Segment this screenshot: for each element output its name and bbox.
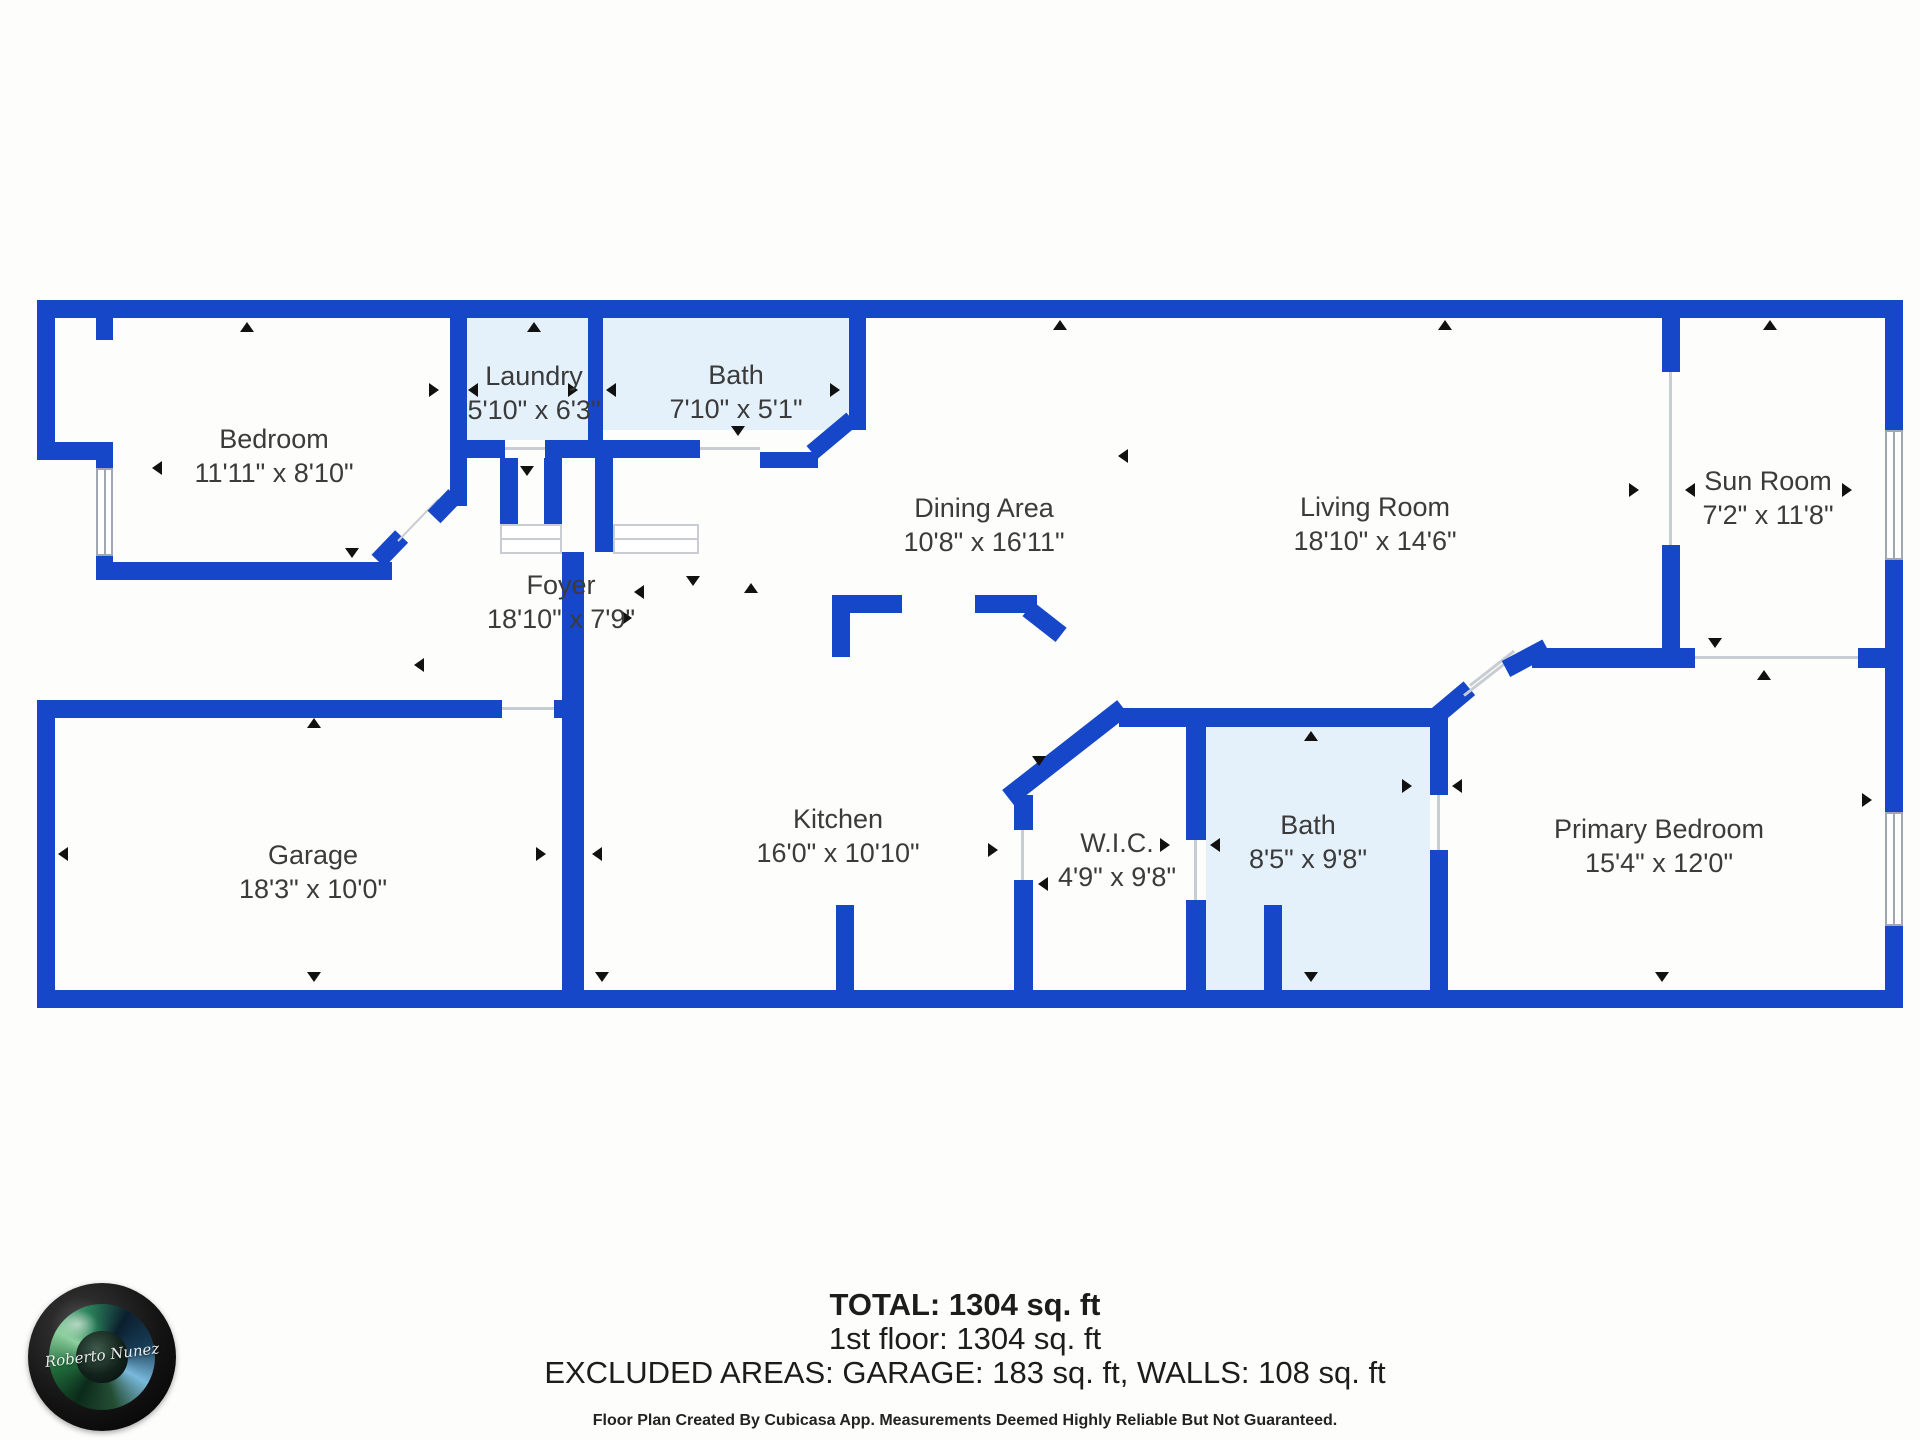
direction-arrow-icon (429, 383, 439, 397)
door-opening (1669, 372, 1672, 545)
room-name: W.I.C. (1058, 826, 1176, 860)
direction-arrow-icon (1402, 779, 1412, 793)
wall (1662, 318, 1680, 372)
direction-arrow-icon (1053, 320, 1067, 330)
room-dims: 7'2" x 11'8" (1702, 498, 1833, 532)
wall (37, 300, 1903, 318)
room-name: Garage (239, 838, 387, 872)
room-label-sun-room: Sun Room 7'2" x 11'8" (1702, 464, 1833, 532)
room-name: Bath (1249, 808, 1367, 842)
wall (96, 318, 113, 340)
room-name: Dining Area (903, 491, 1064, 525)
room-label-wic: W.I.C. 4'9" x 9'8" (1058, 826, 1176, 894)
room-label-garage: Garage 18'3" x 10'0" (239, 838, 387, 906)
room-label-foyer: Foyer 18'10" x 7'9" (487, 568, 635, 636)
room-label-primary-bedroom: Primary Bedroom 15'4" x 12'0" (1554, 812, 1764, 880)
room-dims: 5'10" x 6'3" (467, 393, 600, 427)
room-label-bath: Bath 7'10" x 5'1" (669, 358, 802, 426)
room-name: Bath (669, 358, 802, 392)
wall (832, 595, 902, 613)
direction-arrow-icon (345, 548, 359, 558)
direction-arrow-icon (731, 426, 745, 436)
wall (1014, 880, 1033, 1008)
direction-arrow-icon (592, 847, 602, 861)
room-dims: 18'10" x 7'9" (487, 602, 635, 636)
direction-arrow-icon (240, 322, 254, 332)
direction-arrow-icon (1304, 972, 1318, 982)
wall (37, 700, 55, 1008)
room-name: Sun Room (1702, 464, 1833, 498)
direction-arrow-icon (830, 383, 840, 397)
room-name: Kitchen (756, 802, 919, 836)
first-floor-area-text: 1st floor: 1304 sq. ft (360, 1322, 1570, 1356)
direction-arrow-icon (527, 322, 541, 332)
door-opening (1194, 840, 1197, 900)
direction-arrow-icon (1655, 972, 1669, 982)
room-label-laundry: Laundry 5'10" x 6'3" (467, 359, 600, 427)
direction-arrow-icon (1304, 731, 1318, 741)
direction-arrow-icon (1629, 483, 1639, 497)
direction-arrow-icon (744, 583, 758, 593)
wall (595, 458, 613, 552)
door-opening (1437, 795, 1440, 850)
room-dims: 10'8" x 16'11" (903, 525, 1064, 559)
wall (760, 452, 818, 468)
room-label-bath-2: Bath 8'5" x 9'8" (1249, 808, 1367, 876)
floor-plan: Bedroom 11'11" x 8'10" Laundry 5'10" x 6… (0, 0, 1920, 1440)
wall (37, 300, 55, 460)
room-dims: 11'11" x 8'10" (194, 456, 353, 490)
wall (1186, 900, 1206, 1008)
direction-arrow-icon (1842, 483, 1852, 497)
direction-arrow-icon (536, 847, 546, 861)
room-label-dining-area: Dining Area 10'8" x 16'11" (903, 491, 1064, 559)
direction-arrow-icon (520, 466, 534, 476)
wall (1885, 926, 1903, 1008)
wall (96, 442, 113, 468)
room-dims: 4'9" x 9'8" (1058, 860, 1176, 894)
direction-arrow-icon (1757, 670, 1771, 680)
room-name: Primary Bedroom (1554, 812, 1764, 846)
room-name: Laundry (467, 359, 600, 393)
wall (1119, 708, 1448, 727)
direction-arrow-icon (58, 847, 68, 861)
direction-arrow-icon (1438, 320, 1452, 330)
photographer-logo: Roberto Nunez (28, 1283, 176, 1431)
wall (450, 318, 467, 506)
wall (1022, 602, 1066, 642)
room-name: Living Room (1293, 490, 1456, 524)
room-dims: 16'0" x 10'10" (756, 836, 919, 870)
direction-arrow-icon (1038, 877, 1048, 891)
wall (545, 440, 700, 458)
room-label-kitchen: Kitchen 16'0" x 10'10" (756, 802, 919, 870)
direction-arrow-icon (595, 972, 609, 982)
wall (836, 905, 854, 1008)
door-opening (1463, 660, 1509, 697)
excluded-areas-text: EXCLUDED AREAS: GARAGE: 183 sq. ft, WALL… (360, 1356, 1570, 1390)
direction-arrow-icon (307, 718, 321, 728)
door-opening (505, 447, 545, 450)
door-opening (1021, 830, 1024, 880)
wall (37, 990, 1903, 1008)
closet-doors (613, 524, 699, 554)
room-dims: 18'10" x 14'6" (1293, 524, 1456, 558)
direction-arrow-icon (1708, 638, 1722, 648)
room-dims: 15'4" x 12'0" (1554, 846, 1764, 880)
direction-arrow-icon (1032, 756, 1046, 766)
direction-arrow-icon (606, 383, 616, 397)
wall (1186, 727, 1206, 840)
direction-arrow-icon (1763, 320, 1777, 330)
wall (450, 440, 505, 458)
window-symbol (1885, 812, 1903, 926)
wall (1885, 560, 1903, 812)
direction-arrow-icon (634, 585, 644, 599)
room-label-bedroom: Bedroom 11'11" x 8'10" (194, 422, 353, 490)
direction-arrow-icon (1862, 793, 1872, 807)
direction-arrow-icon (988, 843, 998, 857)
area-summary: TOTAL: 1304 sq. ft 1st floor: 1304 sq. f… (360, 1288, 1570, 1430)
direction-arrow-icon (152, 461, 162, 475)
direction-arrow-icon (1452, 779, 1462, 793)
direction-arrow-icon (307, 972, 321, 982)
direction-arrow-icon (1210, 838, 1220, 852)
wall (1430, 727, 1448, 795)
disclaimer-text: Floor Plan Created By Cubicasa App. Meas… (360, 1412, 1570, 1430)
window-symbol (96, 468, 113, 556)
wall (37, 700, 502, 718)
direction-arrow-icon (1118, 449, 1128, 463)
closet-doors (500, 524, 562, 554)
room-dims: 18'3" x 10'0" (239, 872, 387, 906)
direction-arrow-icon (414, 658, 424, 672)
direction-arrow-icon (1685, 483, 1695, 497)
wall (1002, 700, 1129, 805)
wall (96, 562, 392, 580)
door-opening (1695, 656, 1858, 659)
door-opening (700, 447, 760, 450)
direction-arrow-icon (686, 576, 700, 586)
room-label-living-room: Living Room 18'10" x 14'6" (1293, 490, 1456, 558)
window-symbol (1885, 430, 1903, 560)
room-name: Bedroom (194, 422, 353, 456)
wall (1422, 681, 1475, 729)
room-name: Foyer (487, 568, 635, 602)
door-opening (502, 707, 554, 710)
wall (1885, 300, 1903, 430)
room-dims: 7'10" x 5'1" (669, 392, 802, 426)
wall (849, 318, 866, 430)
wall (1264, 905, 1282, 1008)
wall (1662, 545, 1680, 668)
floor-plan-page: Bedroom 11'11" x 8'10" Laundry 5'10" x 6… (0, 0, 1920, 1440)
room-dims: 8'5" x 9'8" (1249, 842, 1367, 876)
total-area-text: TOTAL: 1304 sq. ft (360, 1288, 1570, 1322)
wall (1430, 850, 1448, 1008)
